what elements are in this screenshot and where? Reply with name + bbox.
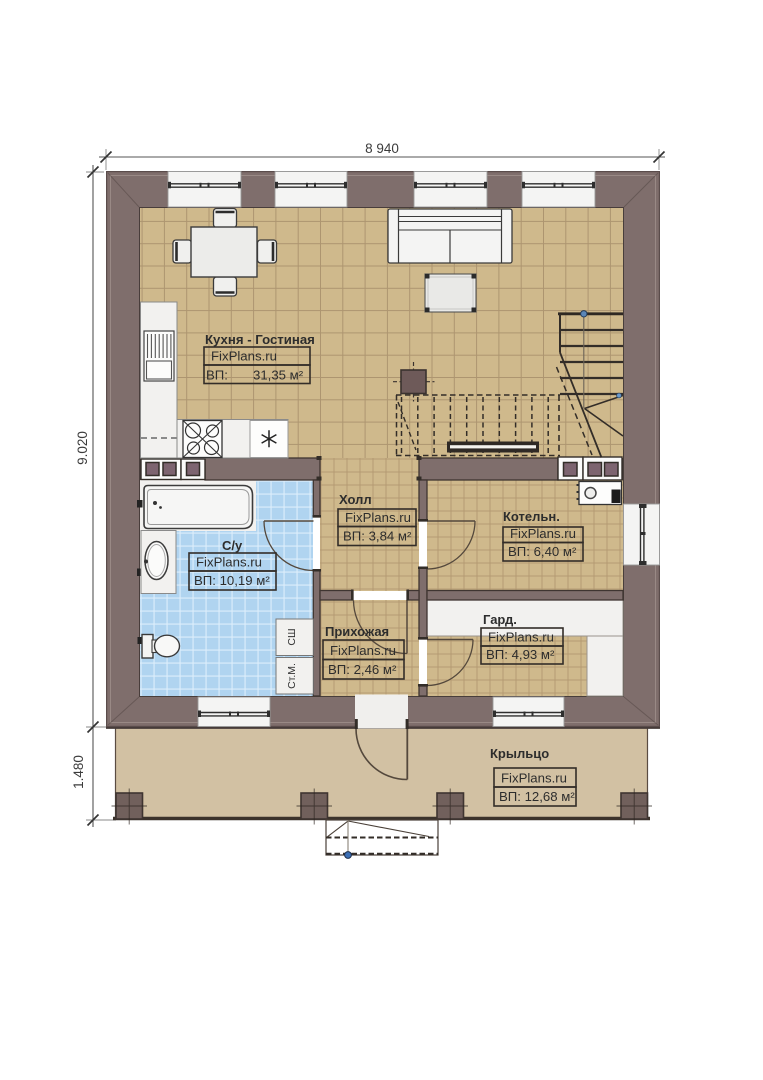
- svg-text:Холл: Холл: [339, 492, 372, 507]
- svg-text:FixPlans.ru: FixPlans.ru: [345, 510, 411, 525]
- svg-text:FixPlans.ru: FixPlans.ru: [211, 349, 277, 364]
- svg-text:ВП: 12,68 м²: ВП: 12,68 м²: [499, 789, 575, 804]
- svg-text:СШ: СШ: [286, 628, 298, 645]
- svg-text:9.020: 9.020: [75, 431, 90, 465]
- svg-text:Кухня - Гостиная: Кухня - Гостиная: [205, 332, 315, 347]
- svg-text:8 940: 8 940: [365, 141, 399, 156]
- svg-text:ВП: 2,46 м²: ВП: 2,46 м²: [328, 662, 397, 677]
- svg-text:ВП: 3,84 м²: ВП: 3,84 м²: [343, 529, 412, 544]
- svg-text:1.480: 1.480: [71, 755, 86, 789]
- svg-text:С/у: С/у: [222, 538, 243, 553]
- svg-text:FixPlans.ru: FixPlans.ru: [330, 643, 396, 658]
- svg-text:Крыльцо: Крыльцо: [490, 746, 549, 761]
- svg-text:ВП: 4,93 м²: ВП: 4,93 м²: [486, 647, 555, 662]
- svg-text:FixPlans.ru: FixPlans.ru: [501, 771, 567, 786]
- svg-text:ВП:: ВП:: [206, 368, 228, 383]
- svg-text:FixPlans.ru: FixPlans.ru: [510, 526, 576, 541]
- svg-text:FixPlans.ru: FixPlans.ru: [196, 555, 262, 570]
- svg-text:Котельн.: Котельн.: [503, 509, 560, 524]
- svg-text:Прихожая: Прихожая: [325, 624, 389, 639]
- svg-text:Ст.М.: Ст.М.: [286, 663, 298, 689]
- svg-text:Гард.: Гард.: [483, 612, 517, 627]
- svg-text:ВП: 10,19 м²: ВП: 10,19 м²: [194, 573, 270, 588]
- svg-text:31,35 м²: 31,35 м²: [253, 368, 304, 383]
- svg-text:ВП: 6,40 м²: ВП: 6,40 м²: [508, 544, 577, 559]
- svg-text:FixPlans.ru: FixPlans.ru: [488, 630, 554, 645]
